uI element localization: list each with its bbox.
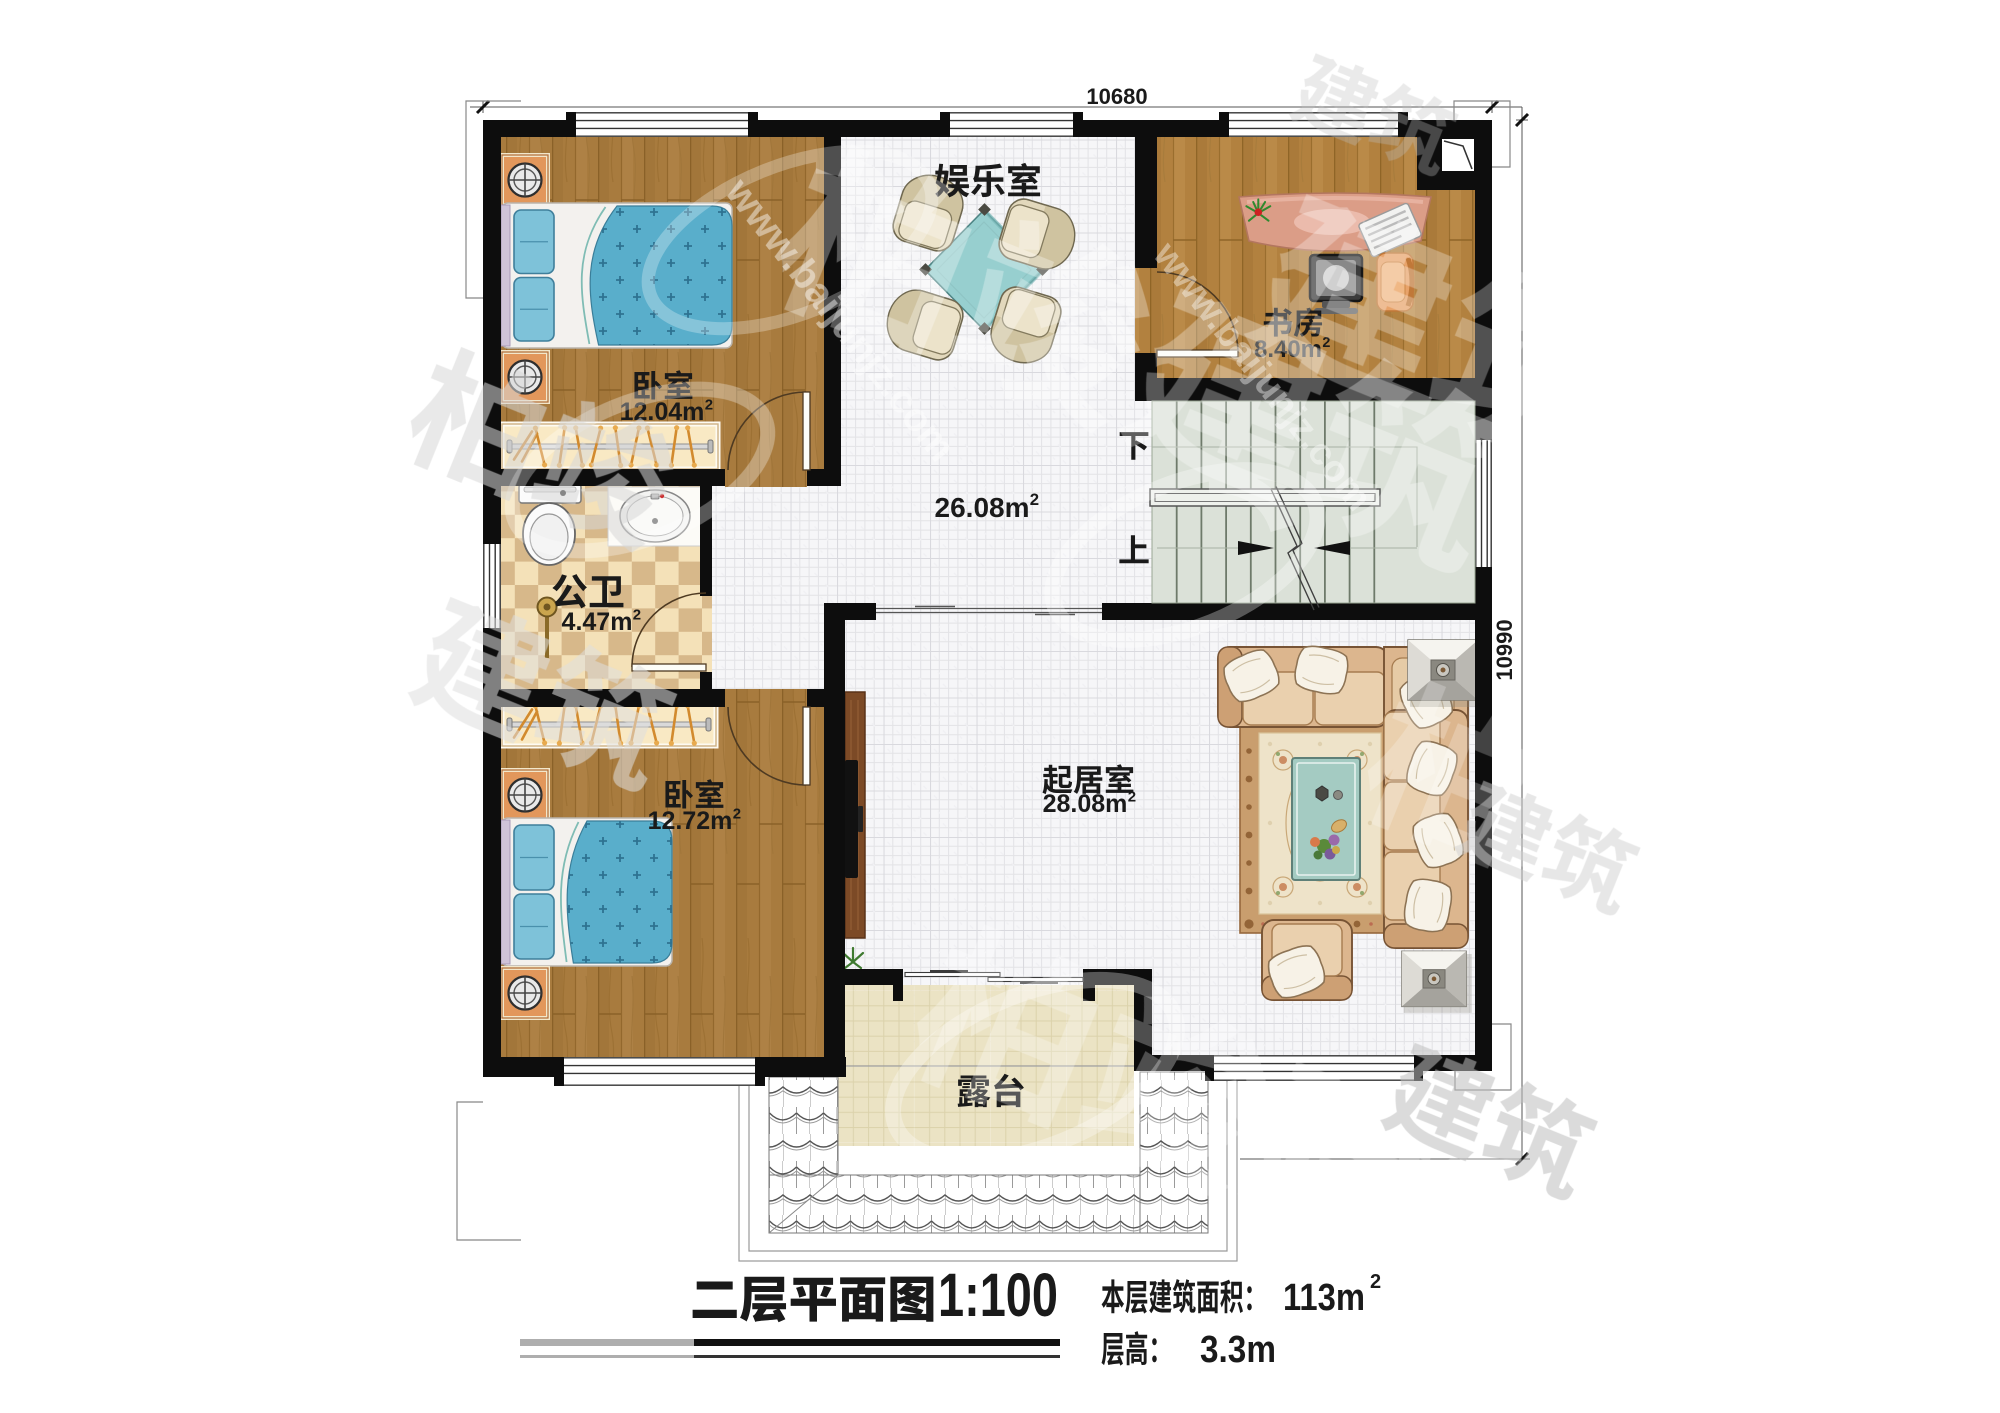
svg-text:10990: 10990 xyxy=(1492,619,1517,680)
svg-text:26.08m: 26.08m xyxy=(935,492,1030,523)
svg-text:2: 2 xyxy=(1030,490,1039,509)
svg-text:1:100: 1:100 xyxy=(938,1261,1058,1329)
svg-text:10680: 10680 xyxy=(1086,84,1147,109)
svg-text:2: 2 xyxy=(633,607,641,624)
svg-text:2: 2 xyxy=(1128,789,1136,806)
svg-text:2: 2 xyxy=(705,397,713,414)
svg-text:4.47m: 4.47m xyxy=(562,608,633,636)
svg-text:113m: 113m xyxy=(1283,1277,1365,1319)
svg-text:28.08m: 28.08m xyxy=(1043,790,1128,818)
svg-text:3.3m: 3.3m xyxy=(1200,1329,1276,1371)
svg-text:2: 2 xyxy=(1370,1271,1381,1293)
svg-text:2: 2 xyxy=(733,806,741,823)
svg-text:12.72m: 12.72m xyxy=(648,807,733,835)
